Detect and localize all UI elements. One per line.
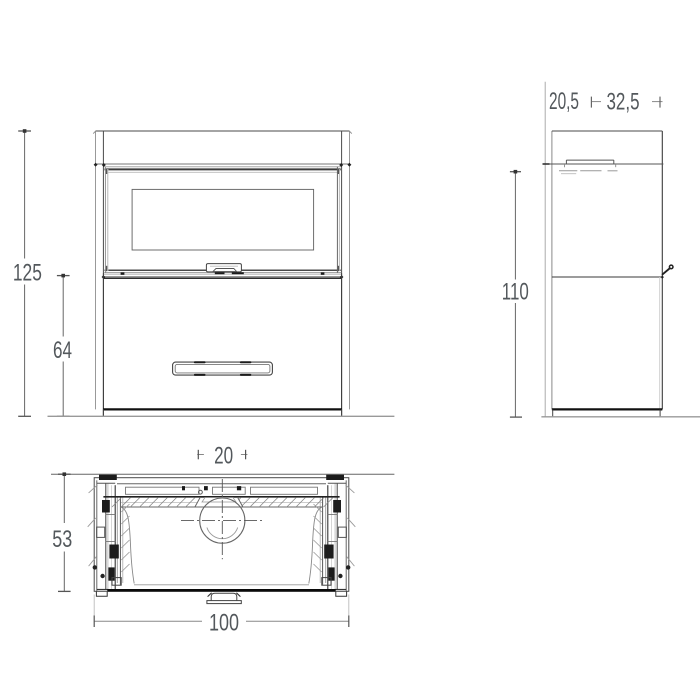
svg-text:53: 53 <box>52 526 72 553</box>
svg-text:100: 100 <box>209 610 239 637</box>
svg-text:20,5: 20,5 <box>549 88 579 115</box>
svg-text:110: 110 <box>502 279 529 306</box>
svg-text:20: 20 <box>214 443 233 470</box>
svg-text:125: 125 <box>13 260 42 287</box>
svg-text:64: 64 <box>53 337 72 364</box>
svg-text:32,5: 32,5 <box>607 88 640 115</box>
